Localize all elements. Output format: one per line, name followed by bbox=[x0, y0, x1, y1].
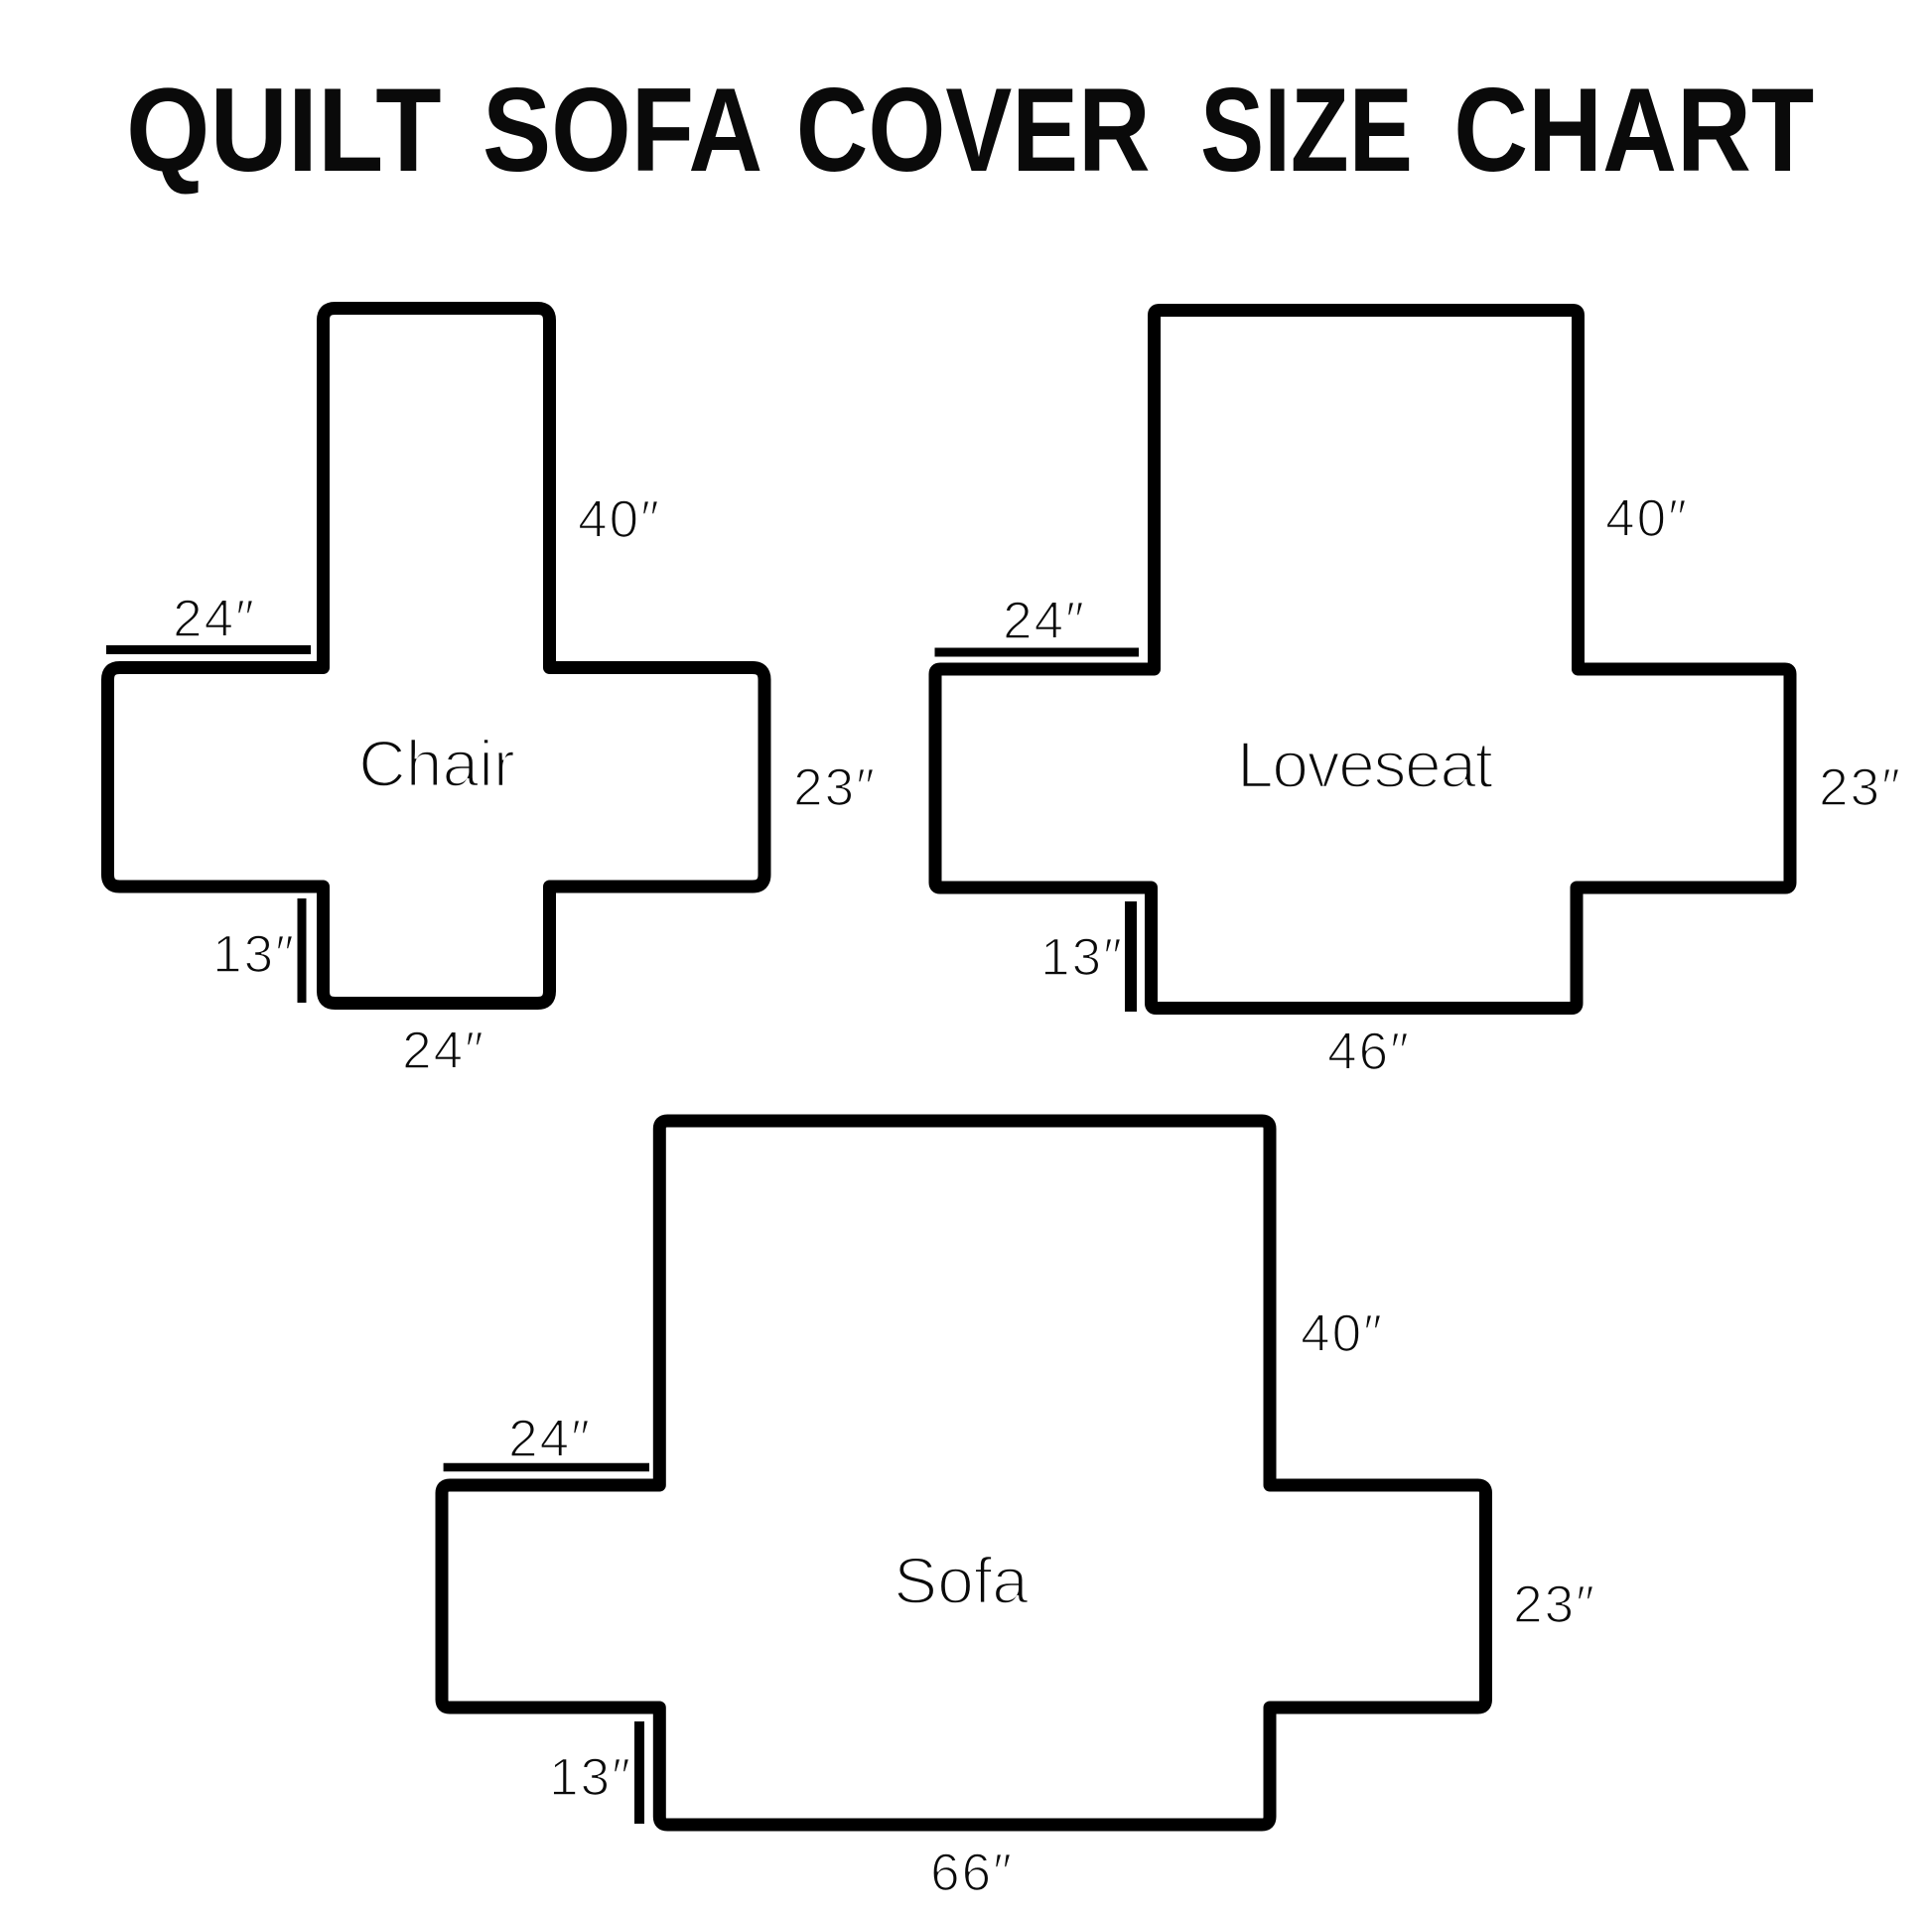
svg-text:24″: 24″ bbox=[402, 1022, 485, 1080]
svg-text:23″: 23″ bbox=[1819, 758, 1902, 817]
svg-text:40″: 40″ bbox=[1605, 489, 1689, 548]
svg-text:13″: 13″ bbox=[212, 925, 296, 984]
svg-text:46″: 46″ bbox=[1327, 1023, 1411, 1081]
svg-text:SOFA: SOFA bbox=[483, 64, 762, 197]
svg-text:24″: 24″ bbox=[173, 590, 256, 648]
svg-text:Sofa: Sofa bbox=[894, 1544, 1029, 1617]
svg-text:QUILT: QUILT bbox=[126, 64, 442, 197]
svg-text:COVER: COVER bbox=[796, 64, 1151, 197]
svg-text:40″: 40″ bbox=[578, 490, 661, 549]
svg-text:24″: 24″ bbox=[1003, 592, 1086, 650]
svg-text:13″: 13″ bbox=[549, 1748, 632, 1807]
svg-text:CHART: CHART bbox=[1453, 64, 1814, 197]
svg-text:23″: 23″ bbox=[1513, 1575, 1596, 1634]
svg-text:66″: 66″ bbox=[930, 1844, 1014, 1902]
svg-text:24″: 24″ bbox=[508, 1410, 592, 1468]
svg-text:SIZE: SIZE bbox=[1200, 64, 1413, 197]
svg-text:40″: 40″ bbox=[1301, 1304, 1384, 1363]
svg-text:Chair: Chair bbox=[358, 727, 515, 800]
svg-text:Loveseat: Loveseat bbox=[1237, 728, 1493, 801]
svg-text:13″: 13″ bbox=[1040, 928, 1124, 987]
svg-text:23″: 23″ bbox=[793, 758, 877, 817]
